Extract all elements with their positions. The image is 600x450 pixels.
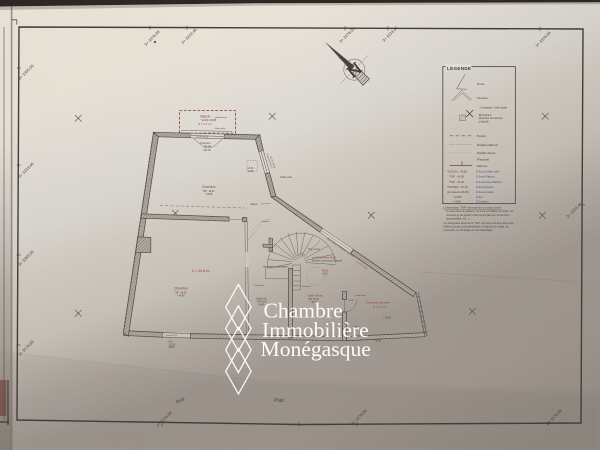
svg-text:Congélateur sous escalier: Congélateur sous escalier xyxy=(264,265,287,268)
svg-text:+0.00: +0.00 xyxy=(348,300,354,302)
svg-text:mesures et de gestion inter-lo: mesures et de gestion inter-locaux/les s… xyxy=(446,213,510,217)
svg-text:+ 0.00: + 0.00 xyxy=(453,200,461,204)
svg-text:penderie: penderie xyxy=(262,220,271,223)
svg-text:Z-Sous Plafond: Z-Sous Plafond xyxy=(476,175,495,179)
svg-text:* 46.85: * 46.85 xyxy=(383,317,391,320)
svg-text:Placards: Placards xyxy=(255,284,264,287)
svg-text:L'information "TAP" est issue: L'information "TAP" est issue d'un const… xyxy=(444,205,503,209)
svg-text:S = 1.7 m²: S = 1.7 m² xyxy=(198,122,212,126)
svg-text:Penderie: Penderie xyxy=(302,285,312,288)
svg-text:Chambre: Chambre xyxy=(202,185,216,189)
svg-text:Porte-fen: Porte-fen xyxy=(201,142,212,145)
svg-text:Placards: Placards xyxy=(477,158,489,162)
svg-text:Porte: Porte xyxy=(477,82,485,86)
svg-text:Marche: Marche xyxy=(477,164,488,168)
svg-text:*porte 46.35: *porte 46.35 xyxy=(165,334,178,337)
svg-text:46.85: 46.85 xyxy=(322,271,328,273)
svg-text:Coffre-volet: Coffre-volet xyxy=(214,127,226,130)
svg-text:* 46.85: * 46.85 xyxy=(205,193,213,196)
svg-text:Détails divers: Détails divers xyxy=(477,151,496,155)
svg-text:(accessibilité, etc...): (accessibilité, etc...) xyxy=(446,216,470,220)
svg-text:Mezzanine: Mezzanine xyxy=(479,113,492,117)
svg-text:LEGENDE: LEGENDE xyxy=(447,66,471,71)
svg-text:+0.15: +0.15 xyxy=(322,274,329,276)
svg-text:*TAP : 46.85: *TAP : 46.85 xyxy=(449,175,464,179)
svg-text:Z-Sous (néant): Z-Sous (néant) xyxy=(476,190,494,194)
svg-text:S = 7.7 m²: S = 7.7 m² xyxy=(373,305,386,309)
svg-text:Détails plafond: Détails plafond xyxy=(477,143,498,147)
svg-text:Garde-corps: Garde-corps xyxy=(215,116,228,119)
svg-text:S = 44.6 m²: S = 44.6 m² xyxy=(192,269,210,273)
svg-text:Z-Cotation: Z-Cotation xyxy=(476,200,489,204)
svg-text:Monégasque: Monégasque xyxy=(261,337,371,361)
svg-text:+0.00: +0.00 xyxy=(247,168,254,170)
svg-text:* 46.35: * 46.35 xyxy=(374,341,382,343)
svg-text:211.00: 211.00 xyxy=(204,149,212,152)
svg-text:Balcon: Balcon xyxy=(201,114,211,118)
svg-text:mesurant, au droisage ou cas h: mesurant, au droisage ou cas hérauliage. xyxy=(444,228,494,232)
svg-text:*TAP : 46.42: *TAP : 46.42 xyxy=(449,180,464,184)
svg-text:* 46.85: * 46.85 xyxy=(453,195,462,199)
svg-text:* 46.85: * 46.85 xyxy=(177,294,185,297)
svg-text:Z-Sous Poutre: Z-Sous Poutre xyxy=(476,185,494,189)
svg-text:indicatif): indicatif) xyxy=(479,120,489,124)
svg-text:(H mineure 46.00): (H mineure 46.00) xyxy=(447,190,469,194)
svg-text:+0.08: +0.08 xyxy=(247,171,254,173)
svg-text:rideaux: rideaux xyxy=(250,203,258,206)
svg-text:Le distinguant ainsi de la "TA: Le distinguant ainsi de la "TAP" qui est… xyxy=(444,221,514,225)
svg-text:coffre-volet: coffre-volet xyxy=(355,294,366,297)
svg-text:Contrainte : Vide totale: Contrainte : Vide totale xyxy=(481,105,508,109)
svg-text:+0.00 Mezzanine 46.85: +0.00 Mezzanine 46.85 xyxy=(312,258,337,260)
svg-text:Coffre-volet: Coffre-volet xyxy=(280,176,292,179)
svg-text:Chambre: Chambre xyxy=(174,287,188,291)
svg-text:Z-Sol: Z-Sol xyxy=(476,195,483,199)
svg-text:Z-Sous Faux-Plafond: Z-Sous Faux-Plafond xyxy=(476,180,502,184)
svg-text:46.85: 46.85 xyxy=(169,347,175,349)
svg-text:Terrasse couverte: Terrasse couverte xyxy=(366,301,390,305)
svg-text:Fenêtre: Fenêtre xyxy=(477,96,488,100)
svg-text:Plafond lorsqu'il est identifi: Plafond lorsqu'il est identifiable à l'é… xyxy=(444,224,510,228)
svg-text:Piati: Piati xyxy=(274,398,284,404)
svg-text:*SOL/Niv : 46.85: *SOL/Niv : 46.85 xyxy=(447,170,468,174)
svg-text:Poutre: Poutre xyxy=(477,134,486,138)
svg-text:113.00: 113.00 xyxy=(169,344,177,346)
svg-text:ce sous-face du plafond, où il: ce sous-face du plafond, où il est consi… xyxy=(446,209,514,213)
svg-text:Trap. accès: Trap. accès xyxy=(308,248,321,251)
svg-text:*TAPPEN : 46.18: *TAPPEN : 46.18 xyxy=(447,185,468,189)
svg-text:Emprise sous accord indicatif: Emprise sous accord indicatif xyxy=(312,260,342,263)
svg-text:+0.00 46.85: +0.00 46.85 xyxy=(196,136,209,138)
svg-text:Z-Sous Coffre-volet: Z-Sous Coffre-volet xyxy=(476,170,500,174)
svg-text:(Emprise de l'accord: (Emprise de l'accord xyxy=(479,116,503,120)
